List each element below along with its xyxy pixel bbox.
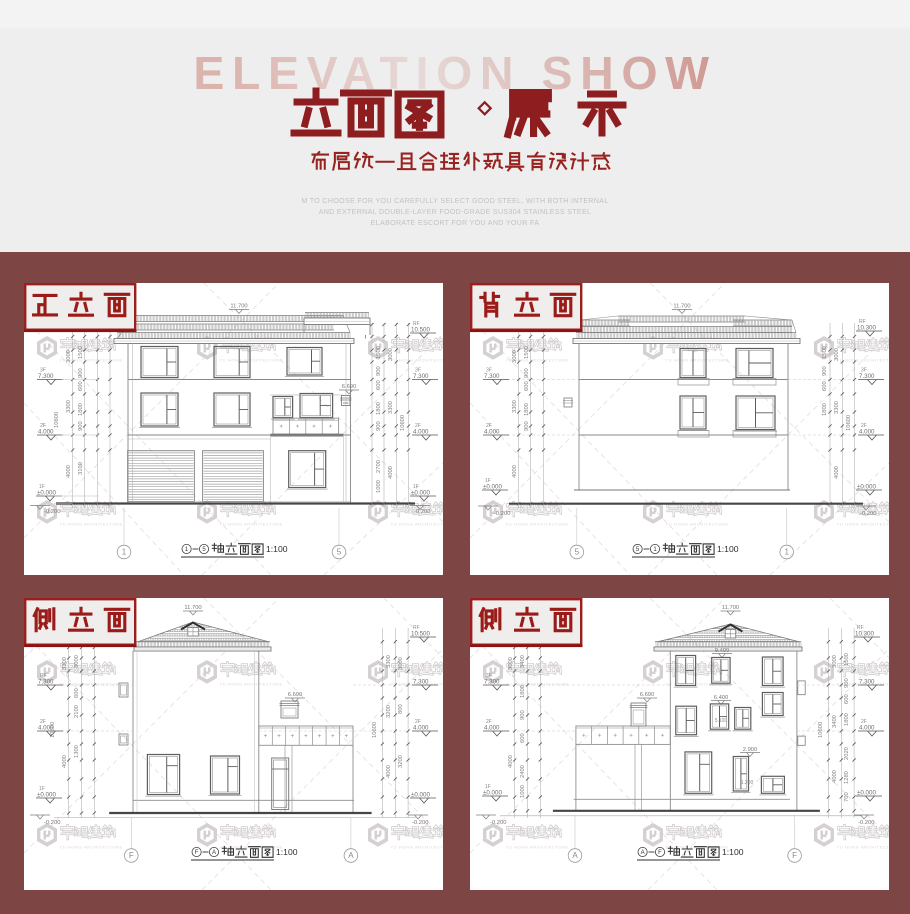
svg-text:3100: 3100 (78, 462, 84, 475)
svg-text:RF: RF (413, 321, 420, 327)
svg-text:7.300: 7.300 (484, 679, 500, 686)
svg-text:900: 900 (78, 421, 84, 431)
svg-text:600: 600 (822, 381, 828, 391)
svg-text:900: 900 (524, 368, 530, 378)
svg-text:2F: 2F (861, 719, 867, 725)
svg-text:1800: 1800 (520, 685, 526, 698)
svg-text:F: F (792, 851, 797, 860)
svg-text:±0.000: ±0.000 (857, 484, 876, 491)
svg-text:1800: 1800 (376, 402, 382, 415)
svg-text:4000: 4000 (66, 465, 72, 478)
svg-text:7.300: 7.300 (38, 679, 54, 686)
svg-text:1000: 1000 (520, 785, 526, 798)
svg-text:3F: 3F (40, 368, 46, 374)
svg-text:10.300: 10.300 (857, 325, 876, 332)
svg-text:4.000: 4.000 (859, 725, 875, 732)
svg-text:4.000: 4.000 (413, 429, 429, 436)
svg-text:F: F (195, 850, 199, 856)
svg-text:3F: 3F (486, 673, 492, 679)
svg-text:900: 900 (524, 421, 530, 431)
svg-text:600: 600 (74, 688, 80, 698)
svg-text:1F: 1F (485, 784, 491, 790)
svg-text:11.700: 11.700 (230, 304, 247, 310)
svg-text:900: 900 (376, 421, 382, 431)
svg-text:1500: 1500 (844, 653, 850, 666)
svg-text:3000: 3000 (398, 657, 404, 670)
svg-text:RF: RF (413, 625, 420, 631)
svg-text:3000: 3000 (74, 655, 80, 668)
svg-text:9.400: 9.400 (715, 648, 730, 654)
svg-text:4.000: 4.000 (484, 429, 500, 436)
svg-text:6.400: 6.400 (714, 695, 729, 701)
svg-text:6.690: 6.690 (288, 692, 303, 698)
svg-text:10600: 10600 (818, 722, 824, 738)
svg-text:10600: 10600 (50, 722, 56, 738)
svg-text:4000: 4000 (834, 466, 840, 479)
svg-text:6.690: 6.690 (342, 384, 357, 390)
svg-text:3000: 3000 (512, 350, 518, 363)
svg-text:1500: 1500 (524, 346, 530, 359)
svg-text:1280: 1280 (844, 771, 850, 784)
svg-text:-0.200: -0.200 (858, 820, 874, 826)
svg-text:1500: 1500 (822, 346, 828, 359)
svg-text:3000: 3000 (834, 348, 840, 361)
svg-text:1F: 1F (39, 786, 45, 792)
svg-text:1F: 1F (39, 484, 45, 490)
svg-text:900: 900 (78, 368, 84, 378)
svg-text:6.690: 6.690 (640, 692, 655, 698)
svg-text:1: 1 (122, 548, 127, 557)
svg-text:10600: 10600 (372, 722, 378, 738)
svg-text:-0.200: -0.200 (44, 820, 60, 826)
svg-text:1800: 1800 (844, 713, 850, 726)
svg-text:600: 600 (524, 381, 530, 391)
svg-text:-0.200: -0.200 (414, 509, 430, 515)
svg-text:11.700: 11.700 (673, 304, 690, 310)
svg-text:4.000: 4.000 (38, 429, 54, 436)
svg-text:10600: 10600 (846, 415, 852, 431)
svg-text:3200: 3200 (386, 705, 392, 718)
svg-text:7.300: 7.300 (859, 679, 875, 686)
svg-text:700: 700 (844, 792, 850, 802)
svg-text:3300: 3300 (512, 400, 518, 413)
svg-text:1:100: 1:100 (722, 847, 744, 857)
svg-text:4000: 4000 (388, 466, 394, 479)
svg-text:3400: 3400 (832, 715, 838, 728)
svg-text:RF: RF (857, 625, 864, 631)
svg-text:2F: 2F (415, 423, 421, 429)
svg-text:10600: 10600 (54, 412, 60, 428)
svg-text:4.000: 4.000 (859, 429, 875, 436)
svg-text:1: 1 (185, 547, 189, 553)
svg-text:±0.000: ±0.000 (411, 792, 430, 799)
svg-text:2400: 2400 (520, 765, 526, 778)
svg-text:7.300: 7.300 (484, 373, 500, 380)
svg-text:A: A (641, 850, 645, 856)
svg-text:10.500: 10.500 (411, 327, 430, 334)
svg-text:±0.000: ±0.000 (37, 792, 56, 799)
svg-text:3000: 3000 (66, 350, 72, 363)
svg-text:A: A (348, 851, 354, 860)
svg-text:3300: 3300 (62, 657, 68, 670)
svg-text:1000: 1000 (376, 480, 382, 493)
svg-text:4000: 4000 (386, 765, 392, 778)
svg-text:-0.200: -0.200 (494, 511, 510, 517)
svg-text:1800: 1800 (822, 403, 828, 416)
svg-text:7.300: 7.300 (413, 679, 429, 686)
svg-text:7.300: 7.300 (38, 373, 54, 380)
svg-text:RF: RF (859, 319, 866, 325)
svg-text:3F: 3F (486, 368, 492, 374)
svg-text:3300: 3300 (386, 655, 392, 668)
svg-text:1F: 1F (485, 478, 491, 484)
svg-text:7.300: 7.300 (859, 373, 875, 380)
svg-text:1:100: 1:100 (717, 544, 739, 554)
svg-text:2F: 2F (861, 423, 867, 429)
svg-text:600: 600 (78, 381, 84, 391)
svg-text:1:100: 1:100 (266, 544, 288, 554)
svg-text:F: F (129, 851, 134, 860)
svg-text:-0.200: -0.200 (860, 511, 876, 517)
svg-text:1500: 1500 (78, 346, 84, 359)
svg-text:1: 1 (784, 548, 789, 557)
svg-text:2100: 2100 (74, 705, 80, 718)
svg-text:1800: 1800 (524, 403, 530, 416)
svg-text:2F: 2F (415, 719, 421, 725)
svg-text:5.100: 5.100 (715, 718, 728, 724)
svg-text:3400: 3400 (520, 655, 526, 668)
svg-text:2020: 2020 (844, 747, 850, 760)
svg-text:3200: 3200 (398, 755, 404, 768)
svg-text:1F: 1F (413, 484, 419, 490)
svg-text:±0.000: ±0.000 (857, 790, 876, 797)
svg-text:2F: 2F (486, 423, 492, 429)
svg-text:RF: RF (40, 673, 47, 679)
svg-text:600: 600 (844, 694, 850, 704)
svg-text:900: 900 (822, 366, 828, 376)
svg-text:3300: 3300 (66, 400, 72, 413)
svg-text:600: 600 (520, 733, 526, 743)
svg-text:1: 1 (653, 547, 657, 553)
svg-text:10.300: 10.300 (855, 631, 874, 638)
svg-text:900: 900 (844, 678, 850, 688)
svg-text:4000: 4000 (512, 465, 518, 478)
svg-text:-0.200: -0.200 (412, 820, 428, 826)
svg-text:3000: 3000 (388, 348, 394, 361)
svg-text:2.900: 2.900 (743, 747, 758, 753)
svg-text:1:100: 1:100 (276, 847, 298, 857)
svg-text:F: F (658, 850, 662, 856)
svg-text:A: A (212, 850, 216, 856)
svg-text:±0.000: ±0.000 (483, 790, 502, 797)
svg-text:4000: 4000 (62, 755, 68, 768)
svg-text:900: 900 (376, 366, 382, 376)
svg-text:4000: 4000 (832, 770, 838, 783)
svg-text:10.500: 10.500 (411, 631, 430, 638)
svg-text:1800: 1800 (78, 403, 84, 416)
svg-text:A: A (572, 851, 578, 860)
svg-text:3F: 3F (861, 368, 867, 374)
svg-text:3300: 3300 (388, 401, 394, 414)
svg-text:600: 600 (376, 380, 382, 390)
svg-text:1300: 1300 (74, 745, 80, 758)
svg-text:7.300: 7.300 (413, 373, 429, 380)
svg-text:4.000: 4.000 (484, 725, 500, 732)
svg-text:2F: 2F (40, 423, 46, 429)
svg-text:1500: 1500 (376, 346, 382, 359)
svg-text:5: 5 (636, 547, 640, 553)
svg-text:2700: 2700 (376, 460, 382, 473)
svg-text:11.700: 11.700 (184, 605, 201, 611)
svg-text:3000: 3000 (508, 657, 514, 670)
svg-text:4000: 4000 (508, 755, 514, 768)
svg-text:900: 900 (520, 710, 526, 720)
svg-text:3F: 3F (415, 368, 421, 374)
svg-text:11.700: 11.700 (722, 605, 739, 611)
svg-text:2F: 2F (40, 719, 46, 725)
svg-text:4.000: 4.000 (413, 725, 429, 732)
svg-text:±0.000: ±0.000 (411, 490, 430, 497)
svg-text:800: 800 (398, 704, 404, 714)
svg-text:±0.000: ±0.000 (37, 490, 56, 497)
svg-text:5: 5 (575, 548, 580, 557)
svg-text:2F: 2F (486, 719, 492, 725)
svg-text:3300: 3300 (834, 401, 840, 414)
svg-text:5: 5 (337, 548, 342, 557)
svg-text:-0.200: -0.200 (490, 820, 506, 826)
svg-text:10600: 10600 (400, 415, 406, 431)
svg-text:5: 5 (202, 547, 206, 553)
svg-text:-0.200: -0.200 (44, 509, 60, 515)
svg-text:±0.000: ±0.000 (483, 484, 502, 491)
svg-text:1.200: 1.200 (741, 780, 754, 786)
svg-text:3000: 3000 (832, 655, 838, 668)
